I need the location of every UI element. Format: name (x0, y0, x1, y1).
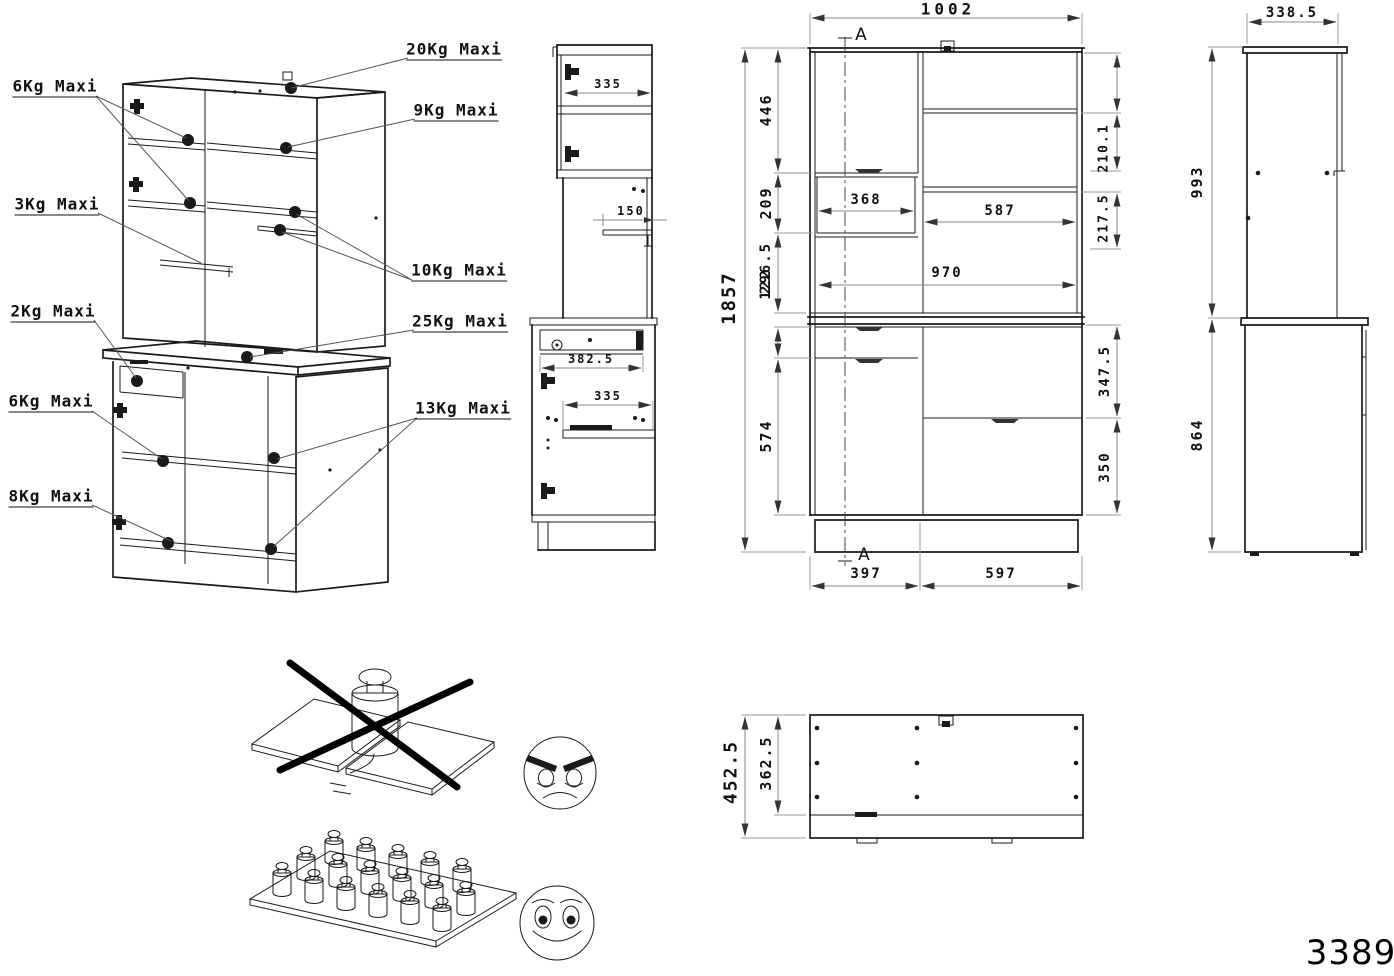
dim-right-upper-height: 993 (1188, 165, 1206, 198)
dim-right-depth: 338.5 (1266, 5, 1318, 21)
dim-front-right-drawer: 350 (1097, 451, 1113, 482)
dim-front-shelf-width: 587 (984, 203, 1015, 219)
distributed-load-icon (250, 831, 516, 948)
load-label-upper-right: 9Kg Maxi (413, 101, 498, 122)
dim-front-right-bay: 597 (985, 566, 1016, 582)
drawing-number: 3389 (1306, 933, 1394, 973)
dim-front-drawer-height: 122 (758, 268, 774, 299)
dim-front-interior-width: 970 (931, 265, 962, 281)
label-leader-lines (92, 58, 417, 547)
dim-side-upper-depth: 335 (594, 77, 622, 91)
load-label-counter: 25Kg Maxi (412, 312, 508, 333)
perspective-cabinet-view (92, 58, 417, 592)
dim-front-niche-height: 209 (757, 186, 775, 219)
dim-base-overall: 452.5 (721, 740, 742, 804)
dim-side-shelf-setback: 150 (617, 204, 645, 218)
dim-front-overall-width: 1002 (921, 0, 976, 19)
dim-front-overall-height: 1857 (718, 271, 740, 325)
dim-side-lower-shelf: 335 (594, 389, 622, 403)
front-view-dimensions (741, 13, 1121, 590)
load-label-drawer: 2Kg Maxi (10, 302, 95, 323)
happy-face-icon (520, 886, 594, 960)
hinge-fittings (112, 99, 144, 530)
right-side-view (1208, 13, 1368, 556)
dim-front-right-lower: 217.5 (1097, 193, 1112, 242)
load-label-top: 20Kg Maxi (406, 40, 502, 61)
dim-right-lower-height: 864 (1188, 418, 1206, 451)
load-label-base-right: 13Kg Maxi (415, 399, 511, 420)
side-section-view (530, 45, 667, 550)
screw-position-dots (815, 726, 1079, 800)
dim-front-right-open: 347.5 (1097, 345, 1113, 397)
no-concentrated-load-icon (252, 663, 494, 795)
dim-side-drawer-depth: 382.5 (568, 352, 614, 366)
dim-front-niche-width: 368 (850, 192, 881, 208)
dim-front-right-upper: 210.1 (1097, 123, 1112, 172)
angry-face-icon (524, 737, 596, 809)
technical-drawing-sheet: 20Kg Maxi 6Kg Maxi 9Kg Maxi 3Kg Maxi 10K… (0, 0, 1394, 976)
load-label-rail: 10Kg Maxi (411, 261, 507, 282)
front-elevation-view (741, 13, 1121, 590)
technical-drawing-canvas (0, 0, 1394, 976)
dim-base-panel: 362.5 (757, 735, 775, 790)
dim-front-lower-door: 574 (757, 419, 775, 452)
load-label-upper-left: 6Kg Maxi (12, 77, 97, 98)
base-panel-detail-view (741, 715, 1083, 843)
section-marker-bottom: A (858, 545, 870, 565)
load-label-base-bottom: 8Kg Maxi (8, 487, 93, 508)
load-label-base-left: 6Kg Maxi (8, 392, 93, 413)
dim-front-upper-door: 446 (757, 93, 775, 126)
section-marker-top: A (855, 25, 867, 45)
dim-front-left-bay: 397 (850, 566, 881, 582)
load-label-small-shelf: 3Kg Maxi (14, 195, 99, 216)
